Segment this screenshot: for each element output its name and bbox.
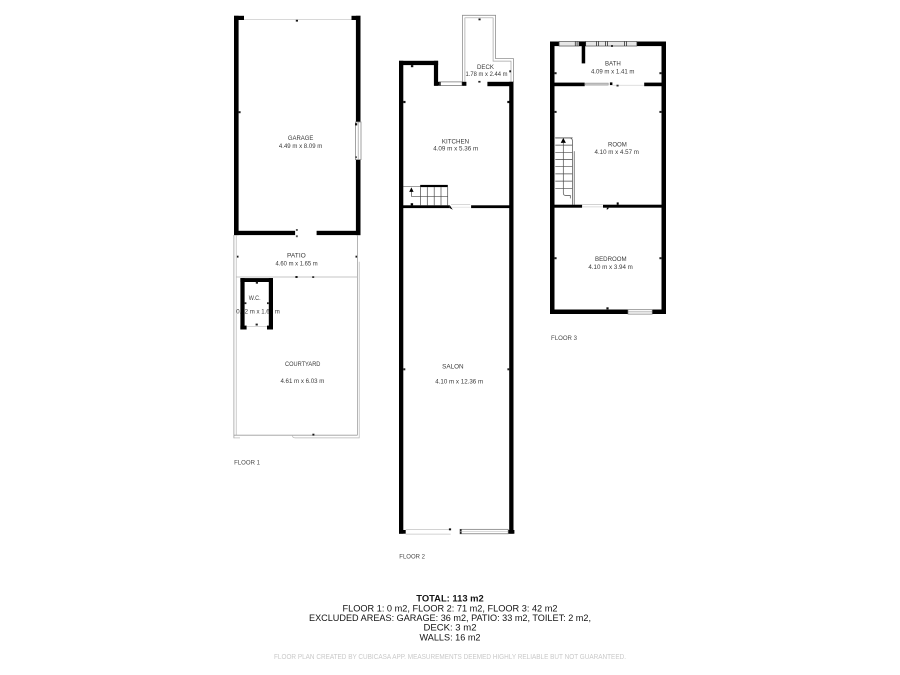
svg-text:BEDROOM: BEDROOM <box>595 256 627 263</box>
svg-text:W.C.: W.C. <box>249 295 261 302</box>
svg-text:FLOOR PLAN CREATED BY CUBICASA: FLOOR PLAN CREATED BY CUBICASA APP. MEAS… <box>274 654 626 661</box>
svg-text:FLOOR 3: FLOOR 3 <box>551 335 577 342</box>
svg-text:4.49 m x 8.09 m: 4.49 m x 8.09 m <box>279 143 322 150</box>
svg-text:EXCLUDED AREAS: GARAGE: 36 m2,: EXCLUDED AREAS: GARAGE: 36 m2, PATIO: 33… <box>309 613 591 623</box>
svg-text:TOTAL: 113 m2: TOTAL: 113 m2 <box>416 594 484 604</box>
svg-text:4.09 m x 5.36 m: 4.09 m x 5.36 m <box>433 146 478 153</box>
svg-text:4.60 m x 1.65 m: 4.60 m x 1.65 m <box>276 260 318 267</box>
svg-text:4.10 m x 12.36 m: 4.10 m x 12.36 m <box>435 379 483 386</box>
svg-text:FLOOR 1: FLOOR 1 <box>234 460 260 467</box>
svg-text:4.10 m x 4.57 m: 4.10 m x 4.57 m <box>595 149 639 156</box>
svg-text:4.61 m x 6.03 m: 4.61 m x 6.03 m <box>280 378 324 385</box>
svg-text:4.09 m x 1.41 m: 4.09 m x 1.41 m <box>591 69 635 76</box>
svg-text:FLOOR 2: FLOOR 2 <box>399 553 425 560</box>
svg-text:BATH: BATH <box>605 61 621 68</box>
svg-text:COURTYARD: COURTYARD <box>285 361 320 368</box>
svg-text:DECK: DECK <box>477 64 494 71</box>
svg-text:SALON: SALON <box>442 364 464 371</box>
svg-text:PATIO: PATIO <box>287 253 306 260</box>
svg-text:DECK: 3 m2: DECK: 3 m2 <box>424 623 477 633</box>
svg-text:GARAGE: GARAGE <box>288 135 314 142</box>
svg-text:4.10 m x 3.94 m: 4.10 m x 3.94 m <box>588 264 633 271</box>
svg-text:KITCHEN: KITCHEN <box>442 139 469 146</box>
svg-text:1.78 m x 2.44 m: 1.78 m x 2.44 m <box>466 71 508 78</box>
svg-text:WALLS: 16 m2: WALLS: 16 m2 <box>420 632 481 642</box>
svg-text:FLOOR 1: 0 m2, FLOOR 2: 71 m2,: FLOOR 1: 0 m2, FLOOR 2: 71 m2, FLOOR 3: … <box>343 603 558 613</box>
svg-text:ROOM: ROOM <box>608 141 627 148</box>
